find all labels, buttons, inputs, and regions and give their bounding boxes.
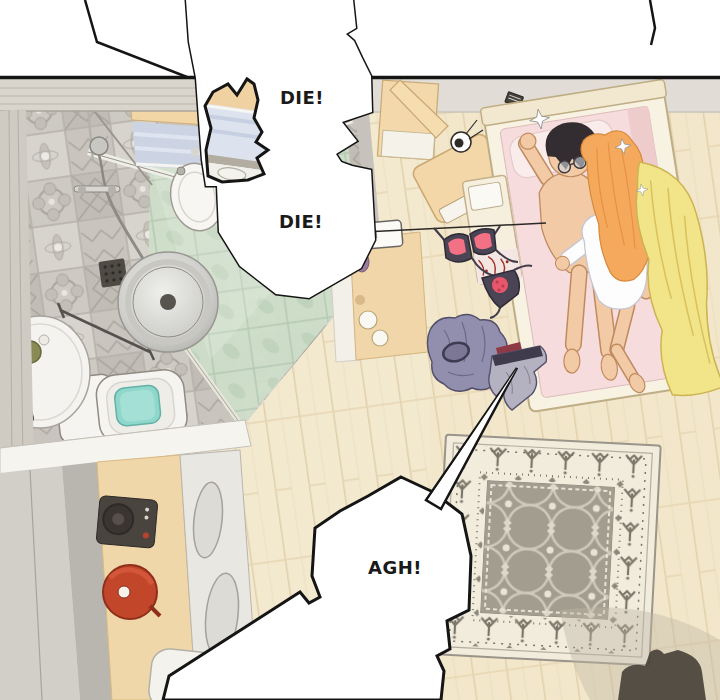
comic-scene: DIE! DIE! AGH! <box>0 0 720 700</box>
cooktop <box>96 495 158 548</box>
bubble-agh: AGH! <box>368 557 422 578</box>
bubble-die-1: DIE! <box>280 87 324 108</box>
bubble-die-2: DIE! <box>279 211 323 232</box>
comic-panel: DIE! DIE! AGH! <box>0 0 720 700</box>
